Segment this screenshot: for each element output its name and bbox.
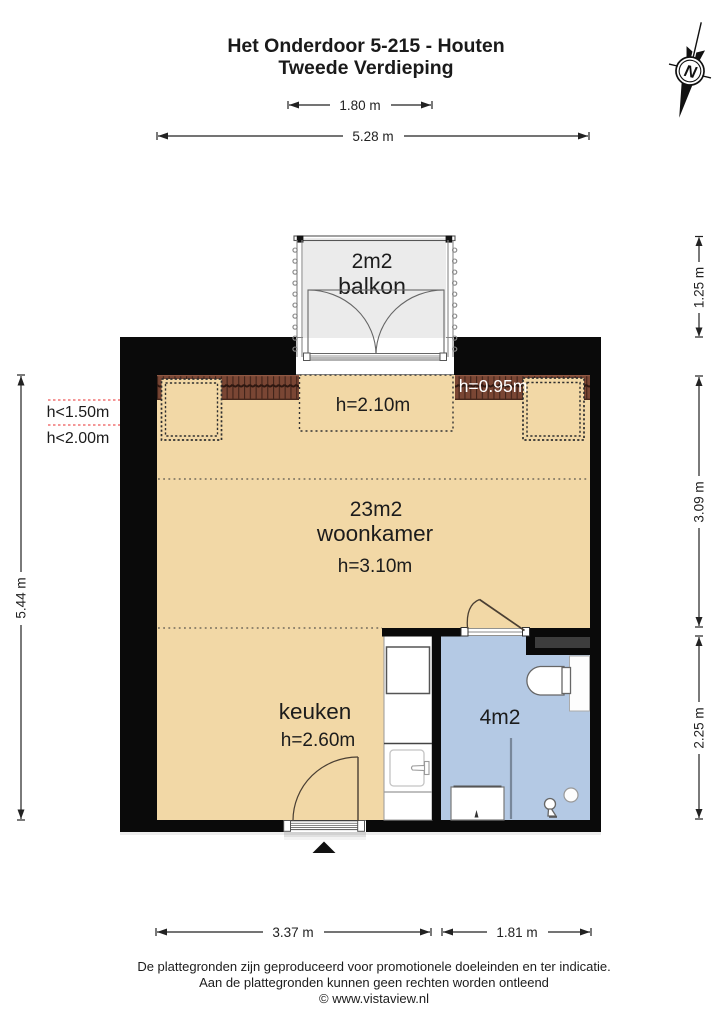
svg-text:2.25 m: 2.25 m	[692, 707, 707, 748]
svg-text:h=0.95m: h=0.95m	[459, 376, 528, 396]
svg-text:4m2: 4m2	[480, 706, 521, 729]
svg-text:1.80 m: 1.80 m	[339, 98, 380, 113]
svg-text:1.25 m: 1.25 m	[692, 267, 707, 308]
svg-text:5.44 m: 5.44 m	[14, 577, 29, 618]
svg-text:Tweede Verdieping: Tweede Verdieping	[278, 57, 453, 79]
svg-text:Aan de plattegronden kunnen ge: Aan de plattegronden kunnen geen rechten…	[199, 975, 549, 990]
svg-text:De plattegronden zijn geproduc: De plattegronden zijn geproduceerd voor …	[137, 959, 610, 974]
svg-text:keuken: keuken	[279, 699, 352, 724]
svg-text:© www.vistaview.nl: © www.vistaview.nl	[319, 991, 429, 1006]
svg-text:2m2: 2m2	[352, 250, 393, 273]
svg-text:h=3.10m: h=3.10m	[338, 556, 412, 577]
svg-text:5.28 m: 5.28 m	[352, 129, 393, 144]
svg-text:Het Onderdoor 5-215 - Houten: Het Onderdoor 5-215 - Houten	[227, 35, 504, 57]
svg-text:balkon: balkon	[338, 273, 406, 299]
svg-text:h=2.10m: h=2.10m	[336, 395, 410, 416]
svg-text:23m2: 23m2	[350, 498, 403, 521]
svg-text:woonkamer: woonkamer	[316, 521, 434, 546]
svg-text:h<2.00m: h<2.00m	[47, 430, 110, 447]
svg-text:3.37 m: 3.37 m	[272, 925, 313, 940]
svg-text:h<1.50m: h<1.50m	[47, 404, 110, 421]
svg-text:3.09 m: 3.09 m	[692, 481, 707, 522]
svg-text:h=2.60m: h=2.60m	[281, 730, 355, 751]
svg-text:1.81 m: 1.81 m	[496, 925, 537, 940]
